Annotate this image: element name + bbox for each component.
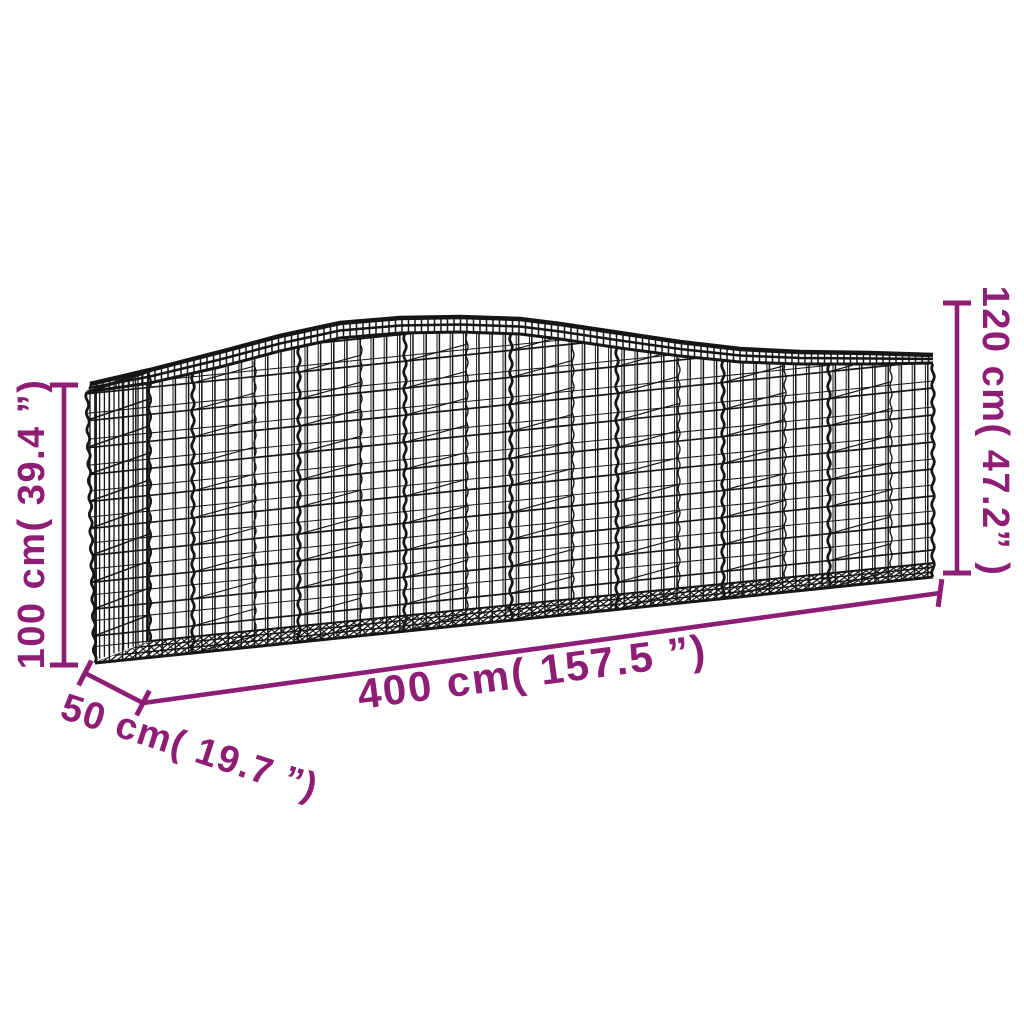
dimension-height-back: 120 cm( 47.2” ) — [943, 286, 1016, 577]
height-front-label: 100 cm( 39.4 ”) — [11, 379, 53, 670]
gabion-basket-wireframe — [86, 253, 945, 664]
depth-label: 50 cm( 19.7 ”) — [56, 686, 324, 809]
dimension-height-front: 100 cm( 39.4 ”) — [11, 379, 78, 670]
product-diagram-page: 100 cm( 39.4 ”) 120 cm( 47.2” ) 400 cm( … — [0, 0, 1024, 1024]
height-back-label: 120 cm( 47.2” ) — [974, 286, 1016, 577]
length-label: 400 cm( 157.5 ”) — [355, 625, 710, 718]
length-cap-right — [938, 579, 942, 607]
gabion-dimension-diagram: 100 cm( 39.4 ”) 120 cm( 47.2” ) 400 cm( … — [0, 0, 1024, 1024]
